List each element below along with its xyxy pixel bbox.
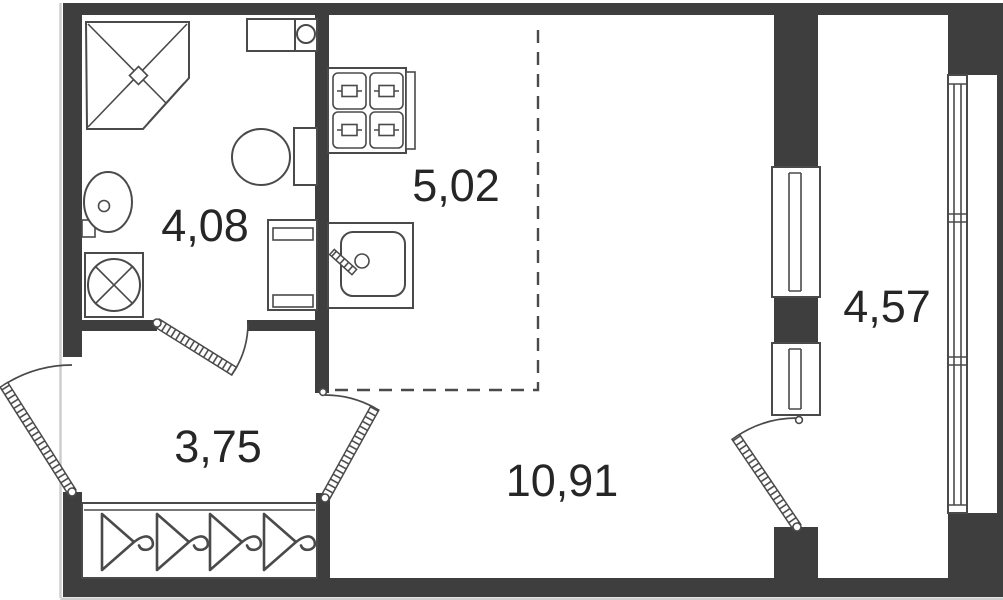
- kitchen-sink: [328, 223, 413, 308]
- doors: [0, 319, 802, 531]
- room-label-bathroom: 4,08: [161, 200, 249, 251]
- room-label-balcony: 4,57: [843, 281, 931, 332]
- balcony-door-leaf: [732, 434, 801, 529]
- toilet-bowl: [232, 129, 290, 185]
- wardrobe-with-hangers: [82, 503, 317, 578]
- wall-balcony-partition-top: [774, 14, 818, 167]
- wall-balcony-partition-bottom: [774, 527, 818, 578]
- entrance-door-leaf: [0, 382, 76, 494]
- floor-plan: 4,08 5,02 3,75 10,91 4,57: [0, 0, 1003, 600]
- bathroom-door-leaf: [155, 319, 237, 375]
- bathroom-door: [153, 319, 248, 375]
- kitchen-sink-drain: [355, 254, 369, 268]
- floor-plan-drawing: 4,08 5,02 3,75 10,91 4,57: [0, 0, 1003, 600]
- toilet-tank: [294, 128, 317, 185]
- stove-4-burner: [328, 68, 415, 153]
- wall-bottom: [63, 578, 1003, 597]
- bathroom-door-hinge: [153, 319, 161, 327]
- entrance-door-hinge: [68, 488, 76, 496]
- room-label-hallway: 3,75: [174, 421, 262, 472]
- boiler-box: [295, 19, 317, 51]
- balcony-door-jamb-dot: [796, 417, 803, 424]
- room-door-jamb-dot: [320, 389, 327, 396]
- washing-machine: [85, 253, 143, 317]
- wall-bathroom-bottom-right: [247, 320, 329, 331]
- room-door-leaf: [321, 406, 379, 500]
- bathroom-fixtures: [82, 19, 317, 317]
- corner-shower: [86, 22, 189, 129]
- wall-top: [63, 3, 948, 15]
- wall-bottom-right-pier: [948, 513, 1003, 597]
- wall-balcony-partition-mid: [774, 297, 818, 343]
- balcony-door-hinge: [793, 523, 801, 531]
- balcony-door: [732, 417, 802, 531]
- wall-balcony-outer-edge: [997, 3, 1003, 597]
- washbasin-faucet: [99, 201, 110, 212]
- wall-bathroom-bottom-left: [63, 320, 157, 331]
- room-door-hinge: [321, 494, 329, 502]
- balcony-window-lower: [772, 343, 820, 415]
- balcony-window-upper: [772, 167, 820, 297]
- balcony-glazing: [948, 75, 967, 513]
- washbasin: [82, 172, 132, 237]
- entrance-door: [0, 365, 76, 496]
- room-door: [320, 389, 379, 502]
- wall-top-right-pier: [948, 3, 1003, 75]
- toilet: [232, 128, 317, 185]
- cabinet-box: [247, 19, 295, 51]
- wall-left-upper: [63, 3, 82, 357]
- wall-wardrobe-right: [316, 493, 330, 578]
- room-label-kitchen: 5,02: [412, 160, 500, 211]
- bathroom-cabinet: [268, 220, 317, 310]
- room-label-living-room: 10,91: [506, 455, 619, 506]
- boiler-unit: [247, 19, 317, 51]
- wall-bathroom-kitchen-divider: [315, 14, 329, 393]
- kitchen-fixtures: [328, 68, 415, 308]
